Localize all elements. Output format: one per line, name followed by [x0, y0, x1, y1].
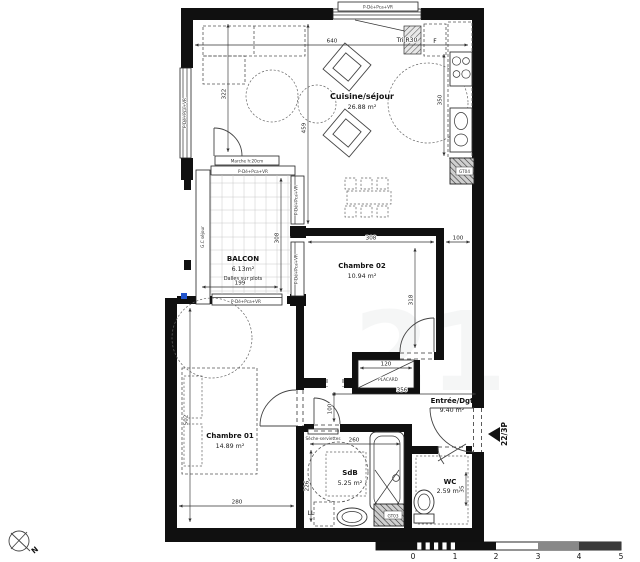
dim-balcon-w: 199: [235, 281, 246, 287]
wall-right-lower: [472, 452, 484, 528]
window-ch01-label: P-Dé+Pca+VR: [231, 299, 261, 304]
table-and-chairs: [345, 178, 391, 217]
balcony-name: BALCON: [227, 255, 259, 263]
washing-machine-label: LL: [308, 510, 315, 517]
wall-wc-top-stub: [466, 446, 472, 454]
pillow-1: [184, 376, 202, 418]
bedroom-01-door-arc: [260, 390, 296, 426]
fridge-label: F: [433, 38, 437, 45]
wall-left-ch01: [165, 298, 177, 528]
unit-label: 22/3P: [500, 422, 509, 446]
gc-column-label: G.C séjour: [200, 226, 205, 248]
floor-plan-page: 21 P-Dé: [0, 0, 640, 562]
gt03-duct: GT03: [374, 504, 404, 526]
balcony-post-top: [184, 180, 191, 190]
bedroom-01: Chambre 01 14.89 m²: [172, 298, 303, 474]
scale-3: 3: [536, 552, 541, 561]
wall-balcony-junction: [290, 226, 306, 238]
wall-hall-top-a: [296, 378, 326, 388]
dim-wc: 35: [460, 485, 466, 493]
bathroom-area: 5.25 m²: [338, 480, 363, 487]
dim-sejour-width: 640: [327, 39, 338, 45]
dim-balcon-h: 308: [275, 232, 281, 243]
wall-ch01-right-lower: [296, 426, 304, 528]
pillow-2: [184, 424, 202, 466]
gt04-label: GT04: [459, 169, 470, 174]
wall-top-left: [183, 8, 333, 20]
side-table: [298, 85, 336, 123]
towel-dryer-label: Sèche-serviettes: [305, 436, 340, 441]
scale-1: 1: [453, 552, 458, 561]
wall-sdb-top-b: [340, 424, 412, 432]
bathroom: LL GT03 Sèche-serviettes SdB 5.25 m²: [305, 398, 404, 526]
dim-sejour-mid-h: 459: [302, 122, 308, 133]
scale-5: 5: [619, 552, 624, 561]
wall-top-right: [421, 8, 484, 20]
north-label: N: [30, 545, 41, 556]
dim-ch02-offset: 100: [453, 236, 464, 242]
kitchen-sink: [450, 108, 472, 152]
dim-ch02-h: 318: [409, 294, 415, 305]
window-balcony-door-label: P-Dé+Pca+VR: [238, 169, 268, 174]
floor-plan-drawing: 21 P-Dé: [0, 0, 640, 562]
bedroom-01-chair: [172, 298, 252, 378]
wall-left-mid: [181, 158, 193, 180]
toilet: [414, 490, 434, 523]
scale-4: 4: [577, 552, 582, 561]
wall-left-top: [181, 8, 193, 68]
shower-circle: [308, 442, 368, 502]
towel-dryer: [308, 429, 338, 434]
washing-machine: [314, 502, 334, 526]
scale-bar: 0 1 2 3 4 5: [376, 542, 624, 561]
dim-sejour-left-h: 322: [222, 89, 228, 100]
wc: WC 2.59 m²: [414, 444, 468, 524]
wall-ch02-bottom-a: [352, 352, 400, 360]
washbasin: [337, 508, 367, 526]
wall-ch02-bottom-b: [434, 352, 444, 360]
scale-0: 0: [411, 552, 416, 561]
wall-right-upper: [472, 20, 484, 408]
sofa-return: [203, 56, 245, 84]
bedroom-02-name: Chambre 02: [338, 262, 386, 270]
cooktop: [450, 52, 472, 86]
bathroom-name: SdB: [342, 469, 357, 477]
entrance-name: Entrée/Dgt: [431, 397, 474, 405]
tri-label: Tri R30: [396, 37, 418, 44]
wall-wc-top: [412, 446, 438, 454]
bedroom-01-area: 14.89 m²: [216, 443, 245, 450]
coffee-table: [246, 70, 298, 122]
dim-entree-w: 356: [397, 388, 408, 394]
kitchen: F Tri R30 GT04 Cuisine/séjour 26.88 m²: [330, 22, 474, 184]
windows: P-Dé+Pca+VR P-Dé+Pca+VR P-Dé+Pca+VR P-Dé…: [180, 2, 421, 305]
dim-sdb-w: 260: [349, 438, 360, 444]
entry-arrow-icon: [488, 427, 500, 442]
wall-placard-bottom: [352, 388, 420, 394]
armchair-2: [323, 109, 371, 157]
window-balcony-upper-label: P-Dé+Pca+VR: [294, 185, 299, 215]
step-label: Marche h:20cm: [231, 159, 263, 164]
wc-name: WC: [444, 478, 457, 486]
balcony-post-bottom: [184, 260, 191, 270]
gt04-duct: GT04: [450, 158, 474, 184]
dim-placard-w: 120: [381, 362, 392, 368]
bedroom-01-name: Chambre 01: [206, 432, 254, 440]
wc-area: 2.59 m²: [437, 488, 462, 495]
bed: [182, 368, 257, 474]
scale-2: 2: [494, 552, 499, 561]
dim-ch01-h: 502: [184, 415, 190, 426]
dim-ch01-w: 280: [232, 500, 243, 506]
gt03-label: GT03: [388, 513, 399, 518]
wall-ch02-right: [436, 236, 444, 352]
dim-hall-h: 100: [328, 403, 334, 414]
window-balcony-lower-label: P-Dé+Pca+VR: [294, 254, 299, 284]
compass: N: [9, 531, 40, 556]
dim-sdb-h: 226: [305, 480, 311, 491]
placard-label: PLACARD: [378, 377, 398, 382]
living-room-area: 26.88 m²: [348, 104, 377, 111]
living-room-furniture: [203, 26, 468, 217]
wall-sdb-wc: [404, 432, 412, 528]
dim-kitchen-h: 350: [438, 94, 444, 105]
window-top-label: P-Dé+Pca+VR: [363, 5, 393, 10]
dim-ch02-w: 308: [366, 236, 377, 242]
living-room-name: Cuisine/séjour: [330, 91, 394, 101]
window-left-label: P-Dé+Pca+VR: [182, 98, 187, 128]
wc-door-arc: [438, 446, 444, 464]
bedroom-02-area: 10.94 m²: [348, 273, 377, 280]
wall-ch01-right-upper: [296, 304, 304, 390]
armchair-1: [323, 43, 371, 91]
balcony-area: 6.13m²: [232, 266, 255, 273]
utility-marker: [181, 293, 187, 299]
wall-bottom: [165, 528, 484, 542]
